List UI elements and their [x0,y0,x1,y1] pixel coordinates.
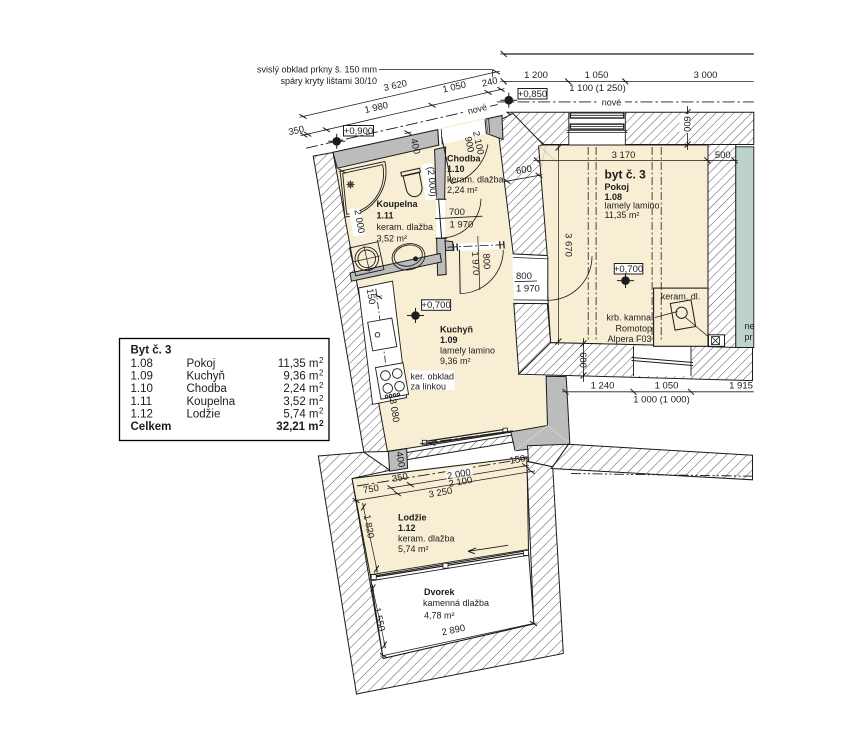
svg-text:+0,900: +0,900 [344,126,373,137]
svg-text:11,35 m: 11,35 m [278,358,319,370]
svg-text:za linkou: za linkou [411,382,447,392]
svg-text:3,52 m: 3,52 m [283,396,318,408]
svg-text:600: 600 [681,116,692,132]
svg-text:9,36 m: 9,36 m [283,371,318,383]
svg-text:lamely lamino: lamely lamino [440,346,495,356]
svg-text:Pokoj: Pokoj [187,358,216,370]
svg-text:Pokoj: Pokoj [605,182,630,192]
svg-text:2: 2 [319,394,324,403]
svg-text:1.10: 1.10 [447,164,465,174]
svg-text:1 970: 1 970 [469,251,481,275]
svg-text:byt č. 3: byt č. 3 [605,168,647,182]
svg-text:Koupelna: Koupelna [377,199,419,209]
svg-text:+0,850: +0,850 [518,89,547,100]
svg-text:keram. dlažba: keram. dlažba [398,534,455,544]
svg-text:1 050: 1 050 [655,380,679,391]
svg-text:3 670: 3 670 [563,233,574,257]
svg-text:1 000 (1 000): 1 000 (1 000) [633,395,690,406]
svg-text:1.12: 1.12 [398,523,416,533]
svg-text:11,35 m²: 11,35 m² [605,210,640,220]
svg-text:Lodžie: Lodžie [398,513,427,523]
svg-text:3 000: 3 000 [694,70,718,81]
svg-text:Kuchyň: Kuchyň [187,371,225,383]
svg-text:1 200: 1 200 [524,70,548,81]
svg-text:1 100 (1 250): 1 100 (1 250) [569,83,626,94]
svg-text:Celkem: Celkem [131,421,172,433]
svg-text:2: 2 [319,418,324,428]
svg-text:Chodba: Chodba [187,383,228,395]
svg-text:nové: nové [602,97,622,107]
svg-text:ker. obklad: ker. obklad [411,372,455,382]
svg-text:1.10: 1.10 [131,383,153,395]
svg-text:5,74 m: 5,74 m [283,409,318,421]
svg-text:+0,700: +0,700 [614,264,643,275]
svg-text:1 915: 1 915 [729,380,753,391]
svg-text:800: 800 [516,271,532,282]
svg-text:4,78 m²: 4,78 m² [424,611,455,621]
svg-text:keram. dlažba: keram. dlažba [377,222,434,232]
svg-text:lamely lamino: lamely lamino [605,201,660,211]
svg-text:Dvorek: Dvorek [424,587,456,597]
svg-text:600: 600 [577,352,588,368]
svg-text:2: 2 [319,407,324,416]
svg-text:1.08: 1.08 [131,358,153,370]
svg-text:2,24 m²: 2,24 m² [447,185,478,195]
svg-text:Byt č. 3: Byt č. 3 [131,345,172,357]
svg-text:ne: ne [745,321,755,331]
svg-text:Kuchyň: Kuchyň [440,325,473,335]
svg-text:svislý obklad prkny š. 150 mm: svislý obklad prkny š. 150 mm [257,65,377,75]
svg-text:1 970: 1 970 [450,220,474,231]
svg-text:1.09: 1.09 [131,371,153,383]
svg-text:Alpera F03: Alpera F03 [607,334,651,344]
svg-text:keram. dl.: keram. dl. [661,292,701,302]
svg-text:Koupelna: Koupelna [187,396,236,408]
svg-text:kamenná dlažba: kamenná dlažba [423,598,489,608]
svg-text:1.11: 1.11 [131,396,153,408]
svg-text:1 970: 1 970 [516,284,540,295]
svg-text:5,74 m²: 5,74 m² [398,544,429,554]
svg-text:1 240: 1 240 [591,380,615,391]
svg-text:1.09: 1.09 [440,335,458,345]
svg-text:krb. kamna.: krb. kamna. [606,313,653,323]
svg-text:+0,700: +0,700 [421,300,450,311]
svg-text:2: 2 [319,356,324,365]
svg-text:3,52 m²: 3,52 m² [377,234,408,244]
svg-text:3 170: 3 170 [612,150,636,161]
svg-text:Romotop: Romotop [615,324,652,334]
svg-text:2: 2 [319,381,324,390]
svg-text:700: 700 [449,207,465,218]
svg-text:1.11: 1.11 [377,211,394,221]
svg-text:9,36 m²: 9,36 m² [440,356,471,366]
svg-text:Lodžie: Lodžie [187,409,221,421]
svg-text:800: 800 [480,253,492,269]
svg-text:spáry kryty lištami 30/10: spáry kryty lištami 30/10 [280,76,377,86]
svg-text:2,24 m: 2,24 m [283,383,318,395]
svg-text:keram. dlažba: keram. dlažba [447,175,504,185]
svg-text:1 050: 1 050 [585,70,609,81]
svg-text:pr: pr [745,332,753,342]
svg-text:500: 500 [715,150,731,161]
svg-text:32,21 m: 32,21 m [276,421,318,433]
svg-text:1.12: 1.12 [131,409,153,421]
svg-text:2: 2 [319,369,324,378]
